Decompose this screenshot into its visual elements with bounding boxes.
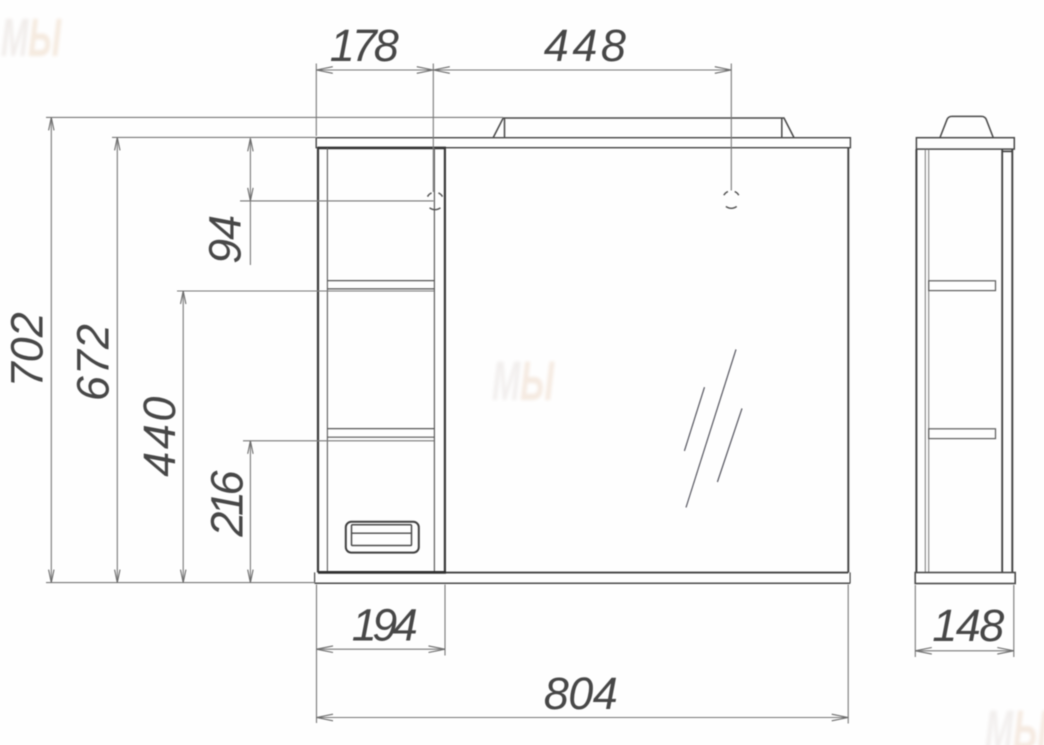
svg-text:672: 672	[68, 323, 119, 401]
svg-text:702: 702	[2, 312, 53, 387]
svg-text:178: 178	[330, 20, 399, 71]
svg-text:448: 448	[544, 20, 630, 71]
svg-text:148: 148	[932, 600, 1004, 651]
svg-text:194: 194	[352, 600, 417, 651]
svg-text:440: 440	[134, 394, 185, 477]
svg-text:804: 804	[544, 668, 618, 719]
svg-text:MЫ: MЫ	[1, 8, 62, 68]
svg-text:216: 216	[201, 470, 252, 538]
svg-text:MЫ: MЫ	[985, 698, 1044, 745]
svg-text:MЫ: MЫ	[492, 349, 555, 412]
svg-text:94: 94	[200, 216, 251, 264]
